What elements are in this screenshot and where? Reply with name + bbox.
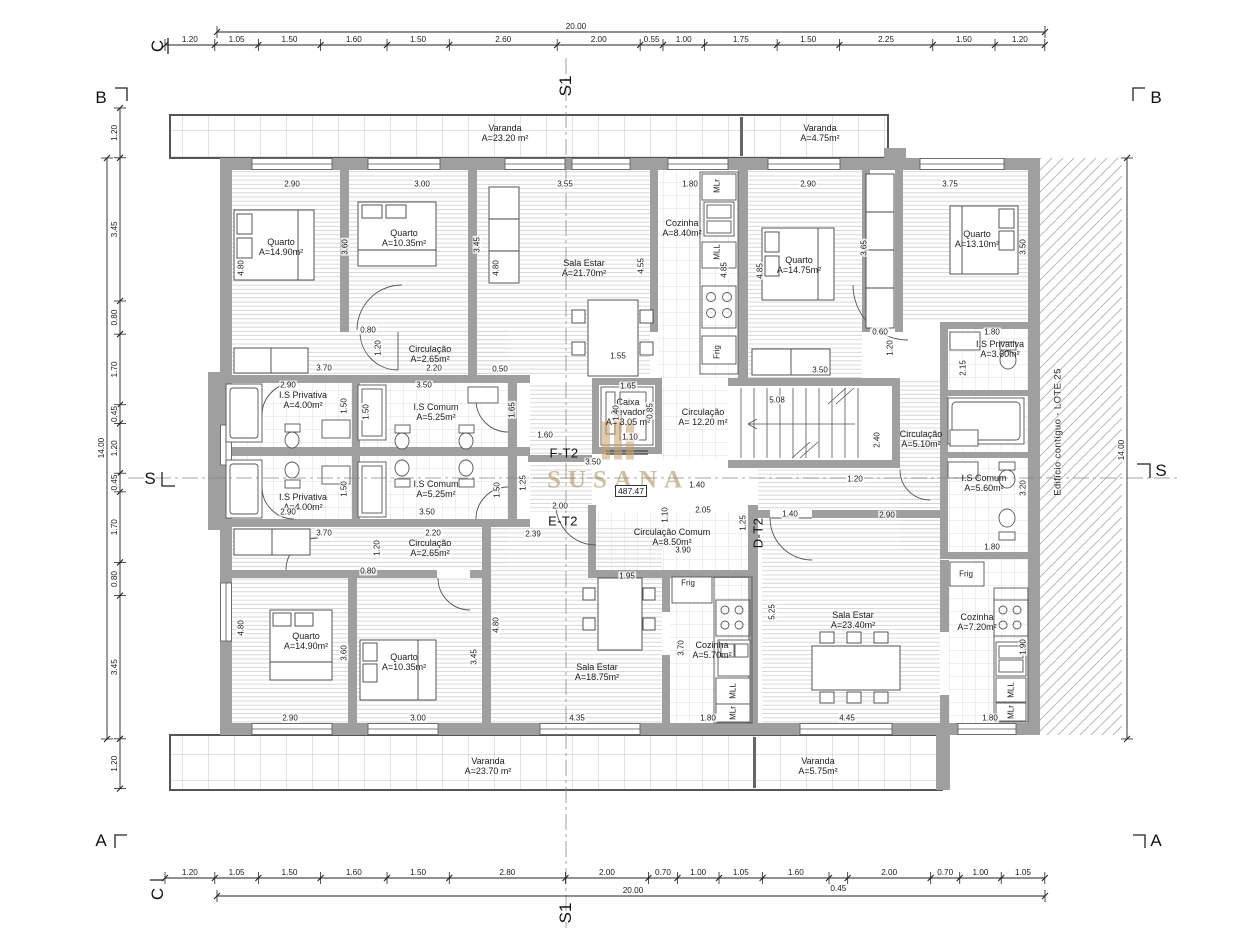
dimension-label: 1.50 xyxy=(340,397,349,415)
dimension-label: 1.10 xyxy=(621,433,639,442)
dimension-label: 1.25 xyxy=(519,474,528,492)
dimension-label: 1.60 xyxy=(536,431,554,440)
room-label: I.S ComumA=5.25m² xyxy=(413,402,458,422)
room-area: A=23.70 m² xyxy=(465,766,512,776)
dimension-label: 1.20 xyxy=(373,539,382,557)
dimension-label: 1.40 xyxy=(688,481,706,490)
appliance-label: MLr xyxy=(713,179,722,193)
room-name: Varanda xyxy=(465,756,512,766)
dimension-label: 3.50 xyxy=(418,508,436,517)
dimension-label: 2.90 xyxy=(878,511,896,520)
dimension-label: 1.80 xyxy=(983,328,1001,337)
appliance-label: MLL xyxy=(1007,682,1016,698)
room-area: A=18.75m² xyxy=(575,672,619,682)
room-name: I.S Privativa xyxy=(279,492,327,502)
dimension-label: 0.85 xyxy=(646,402,655,420)
room-area: A=4.75m² xyxy=(800,133,839,143)
dimension-label: 2.20 xyxy=(425,364,443,373)
dimension-label: 4.55 xyxy=(637,257,646,275)
unit-label: E-T2 xyxy=(548,514,578,529)
room-label: I.S PrivativaA=4.00m² xyxy=(279,390,327,410)
dimension-label: 1.20 xyxy=(886,339,895,357)
dimension-label: 1.20 xyxy=(846,475,864,484)
room-name: Varanda xyxy=(800,123,839,133)
dimension-label: 1.50 xyxy=(493,481,502,499)
room-name: I.S Privativa xyxy=(976,339,1024,349)
room-label: VarandaA=5.75m² xyxy=(798,756,837,776)
dimension-label: 4.80 xyxy=(492,259,501,277)
dimension-label: 3.90 xyxy=(674,546,692,555)
section-mark: A xyxy=(95,831,106,851)
dimension-label: 2.90 xyxy=(799,180,817,189)
unit-label: D-T2 xyxy=(751,518,766,549)
room-label: VarandaA=4.75m² xyxy=(800,123,839,143)
room-area: A=8.50m² xyxy=(614,537,730,547)
room-label: CirculaçãoA=2.65m² xyxy=(409,344,452,364)
room-name: I.S Comum xyxy=(961,473,1006,483)
dimension-label: 3.50 xyxy=(1019,238,1028,256)
unit-label: F-T2 xyxy=(549,446,578,461)
room-name: I.S Comum xyxy=(413,479,458,489)
dimension-label: 1.25 xyxy=(739,514,748,532)
dimension-label: 3.00 xyxy=(413,180,431,189)
room-area: A=14.75m² xyxy=(777,265,821,275)
room-label: Sala EstarA=23.40m² xyxy=(831,610,875,630)
room-label: I.S ComumA=5.60m² xyxy=(961,473,1006,493)
room-name: Quarto xyxy=(284,631,328,641)
dimension-label: 1.50 xyxy=(362,403,371,421)
dimension-label: 4.35 xyxy=(568,714,586,723)
section-mark: B xyxy=(95,88,106,108)
room-area: A=4.00m² xyxy=(279,400,327,410)
dimension-label: 0.80 xyxy=(359,326,377,335)
room-name: Quarto xyxy=(955,229,999,239)
room-name: Sala Estar xyxy=(575,662,619,672)
room-label: CirculaçãoA=2.65m² xyxy=(409,538,452,558)
dimension-label: 1.65 xyxy=(619,382,637,391)
room-label: CozinhaA=5.70m² xyxy=(692,640,731,660)
room-area: A=7.20m² xyxy=(957,622,996,632)
dimension-label: 2.90 xyxy=(281,714,299,723)
room-area: A=14.90m² xyxy=(259,247,303,257)
appliance-label: Frig xyxy=(681,579,695,588)
dimension-label: 2.20 xyxy=(424,529,442,538)
dimension-label: 3.60 xyxy=(340,644,349,662)
room-area: A=14.90m² xyxy=(284,641,328,651)
room-label: QuartoA=14.75m² xyxy=(777,255,821,275)
section-mark: S xyxy=(144,469,155,489)
appliance-label: MLL xyxy=(729,683,738,699)
room-area: A=5.10m² xyxy=(900,439,943,449)
room-name: Quarto xyxy=(382,228,426,238)
dimension-label: 1.40 xyxy=(781,510,799,519)
dimension-label: 5.25 xyxy=(768,603,777,621)
dimension-label: 2.90 xyxy=(279,381,297,390)
dimension-label: 1.95 xyxy=(618,572,636,581)
dimension-label: 1.20 xyxy=(374,339,383,357)
dimension-label: 1.80 xyxy=(699,714,717,723)
appliance-label: MLr xyxy=(1007,705,1016,719)
dimension-label: 2.15 xyxy=(959,359,968,377)
dimension-label: 2.05 xyxy=(694,506,712,515)
dimension-label: 3.60 xyxy=(341,238,350,256)
dimension-label: 3.50 xyxy=(811,366,829,375)
room-label: Sala EstarA=18.75m² xyxy=(575,662,619,682)
room-area: A=23.40m² xyxy=(831,620,875,630)
room-name: Circulação xyxy=(900,429,943,439)
dimension-label: 3.00 xyxy=(409,714,427,723)
room-label: CozinhaA=8.40m² xyxy=(662,218,701,238)
room-label: CozinhaA=7.20m² xyxy=(957,612,996,632)
room-area: A=8.40m² xyxy=(662,228,701,238)
room-area: A=13.10m² xyxy=(955,239,999,249)
dimension-label: 3.65 xyxy=(860,239,869,257)
dimension-label: 3.55 xyxy=(556,180,574,189)
room-name: I.S Comum xyxy=(413,402,458,412)
dimension-label: 3.70 xyxy=(677,639,686,657)
room-area: A=5.25m² xyxy=(413,489,458,499)
dimension-label: 0.60 xyxy=(871,328,889,337)
room-name: Cozinha xyxy=(957,612,996,622)
dimension-label: 3.20 xyxy=(1019,479,1028,497)
dimension-label: 4.80 xyxy=(237,259,246,277)
room-name: Cozinha xyxy=(662,218,701,228)
room-label: QuartoA=10.35m² xyxy=(382,228,426,248)
dimension-label: 4.80 xyxy=(237,619,246,637)
dimension-label: 2.90 xyxy=(279,508,297,517)
dimension-label: 3.75 xyxy=(941,180,959,189)
dimension-label: 1.80 xyxy=(681,180,699,189)
room-name: Circulação xyxy=(678,407,727,417)
dimension-label: 4.80 xyxy=(492,616,501,634)
room-label: Sala EstarA=21.70m² xyxy=(562,258,606,278)
dimension-label: 2.40 xyxy=(873,431,882,449)
room-label: QuartoA=14.90m² xyxy=(259,237,303,257)
dimension-label: 1.80 xyxy=(983,543,1001,552)
dimension-label: 3.70 xyxy=(315,529,333,538)
dimension-label: 3.50 xyxy=(584,458,602,467)
room-label: CirculaçãoA=5.10m² xyxy=(900,429,943,449)
dimension-label: 3.45 xyxy=(470,648,479,666)
dimension-label: 1.55 xyxy=(609,352,627,361)
room-area: A=5.25m² xyxy=(413,412,458,422)
dimension-label: 1.65 xyxy=(508,401,517,419)
dimension-label: 4.45 xyxy=(838,714,856,723)
section-mark: S xyxy=(1155,461,1166,481)
appliance-label: MLr xyxy=(729,706,738,720)
room-area: A=3.60m² xyxy=(976,349,1024,359)
room-area: A= 12.20 m² xyxy=(678,417,727,427)
room-area: A=2.65m² xyxy=(409,548,452,558)
dimension-label: 4.85 xyxy=(756,262,765,280)
room-name: Quarto xyxy=(259,237,303,247)
section-mark: C xyxy=(148,888,168,900)
room-name: Circulação xyxy=(409,538,452,548)
room-label: QuartoA=13.10m² xyxy=(955,229,999,249)
section-mark: C xyxy=(148,40,168,52)
room-area: A=10.35m² xyxy=(382,238,426,248)
room-name: Cozinha xyxy=(692,640,731,650)
room-label: QuartoA=10.35m² xyxy=(382,652,426,672)
dimension-label: 5.08 xyxy=(768,396,786,405)
room-name: Varanda xyxy=(482,123,529,133)
dimension-label: 2.90 xyxy=(283,180,301,189)
room-area: A=5.75m² xyxy=(798,766,837,776)
labels-layer: VarandaA=23.20 m²VarandaA=4.75m²QuartoA=… xyxy=(0,0,1240,936)
dimension-label: 3.45 xyxy=(473,236,482,254)
dimension-label: 0.50 xyxy=(491,365,509,374)
floor-plan-sheet: 1.201.051.501.601.502.602.000.551.001.75… xyxy=(0,0,1240,936)
room-area: A=21.70m² xyxy=(562,268,606,278)
room-label: VarandaA=23.20 m² xyxy=(482,123,529,143)
room-name: I.S Privativa xyxy=(279,390,327,400)
appliance-label: Frig xyxy=(713,345,722,359)
room-name: Circulação xyxy=(409,344,452,354)
section-mark: S1 xyxy=(556,903,576,924)
dimension-label: 1.10 xyxy=(661,506,670,524)
room-area: A=5.70m² xyxy=(692,650,731,660)
appliance-label: Frig xyxy=(959,570,973,579)
appliance-label: MLL xyxy=(713,244,722,260)
dimension-label: 3.50 xyxy=(415,381,433,390)
room-label: VarandaA=23.70 m² xyxy=(465,756,512,776)
room-label: QuartoA=14.90m² xyxy=(284,631,328,651)
room-label: I.S ComumA=5.25m² xyxy=(413,479,458,499)
dimension-label: 0.80 xyxy=(359,567,377,576)
room-name: Sala Estar xyxy=(562,258,606,268)
room-name: Quarto xyxy=(777,255,821,265)
dimension-label: 1.50 xyxy=(340,480,349,498)
room-area: A=5.60m² xyxy=(961,483,1006,493)
dimension-label: 1.80 xyxy=(981,714,999,723)
room-name: Circulação Comum xyxy=(614,527,730,537)
room-label: Circulação ComumA=8.50m² xyxy=(614,527,730,547)
room-name: Sala Estar xyxy=(831,610,875,620)
dimension-label: 1.90 xyxy=(1019,638,1028,656)
room-area: A=23.20 m² xyxy=(482,133,529,143)
dimension-label: 1.40 xyxy=(612,404,621,422)
room-label: I.S PrivativaA=3.60m² xyxy=(976,339,1024,359)
room-label: CirculaçãoA= 12.20 m² xyxy=(678,407,727,427)
section-mark: S1 xyxy=(556,76,576,97)
dimension-label: 3.70 xyxy=(315,364,333,373)
dimension-label: 2.00 xyxy=(551,502,569,511)
section-mark: A xyxy=(1150,831,1161,851)
room-area: A=10.35m² xyxy=(382,662,426,672)
dimension-label: 2.39 xyxy=(524,530,542,539)
room-name: Varanda xyxy=(798,756,837,766)
dimension-label: 4.85 xyxy=(720,261,729,279)
room-name: Quarto xyxy=(382,652,426,662)
section-mark: B xyxy=(1150,88,1161,108)
